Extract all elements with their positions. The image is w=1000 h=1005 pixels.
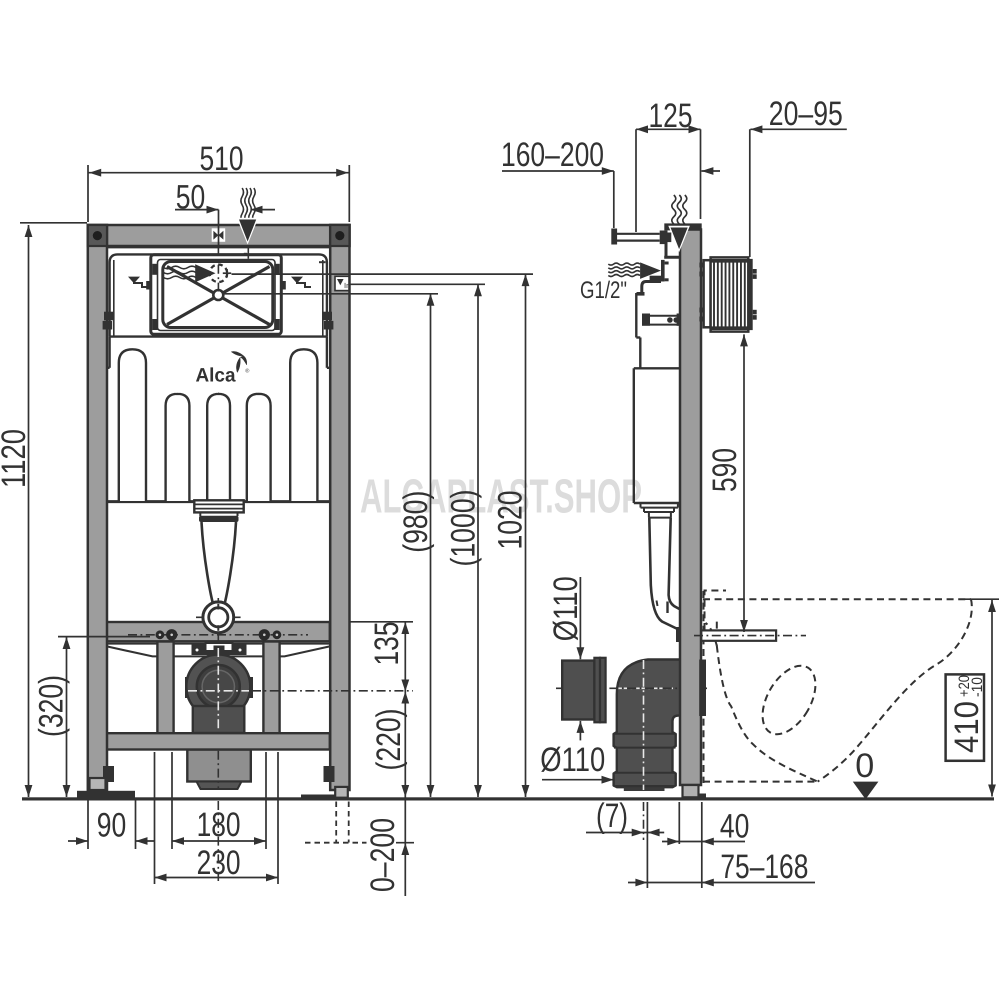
svg-text:1020: 1020 (492, 491, 530, 550)
svg-text:40: 40 (720, 808, 750, 846)
svg-text:590: 590 (706, 448, 744, 492)
svg-text:135: 135 (368, 622, 406, 666)
svg-text:In: In (344, 281, 350, 290)
svg-text:Alca: Alca (196, 365, 236, 387)
svg-text:(220): (220) (370, 709, 408, 771)
svg-text:0: 0 (855, 747, 874, 785)
svg-text:G1/2": G1/2" (580, 277, 627, 304)
svg-text:50: 50 (176, 179, 206, 217)
svg-text:Ø110: Ø110 (540, 741, 605, 779)
svg-text:1120: 1120 (0, 429, 33, 488)
svg-text:(980): (980) (397, 491, 435, 553)
svg-text:20–95: 20–95 (769, 95, 843, 133)
svg-text:Ø110: Ø110 (547, 576, 585, 641)
svg-text:510: 510 (200, 140, 244, 178)
svg-text:-10: -10 (969, 677, 986, 697)
svg-text:125: 125 (649, 97, 693, 135)
svg-text:(320): (320) (33, 675, 71, 737)
svg-text:160–200: 160–200 (501, 136, 604, 174)
svg-text:90: 90 (97, 807, 127, 845)
svg-text:410: 410 (948, 701, 986, 753)
svg-text:(1000): (1000) (445, 490, 483, 567)
svg-text:0–200: 0–200 (364, 818, 402, 892)
svg-text:(7): (7) (596, 797, 628, 835)
svg-text:75–168: 75–168 (720, 848, 808, 886)
